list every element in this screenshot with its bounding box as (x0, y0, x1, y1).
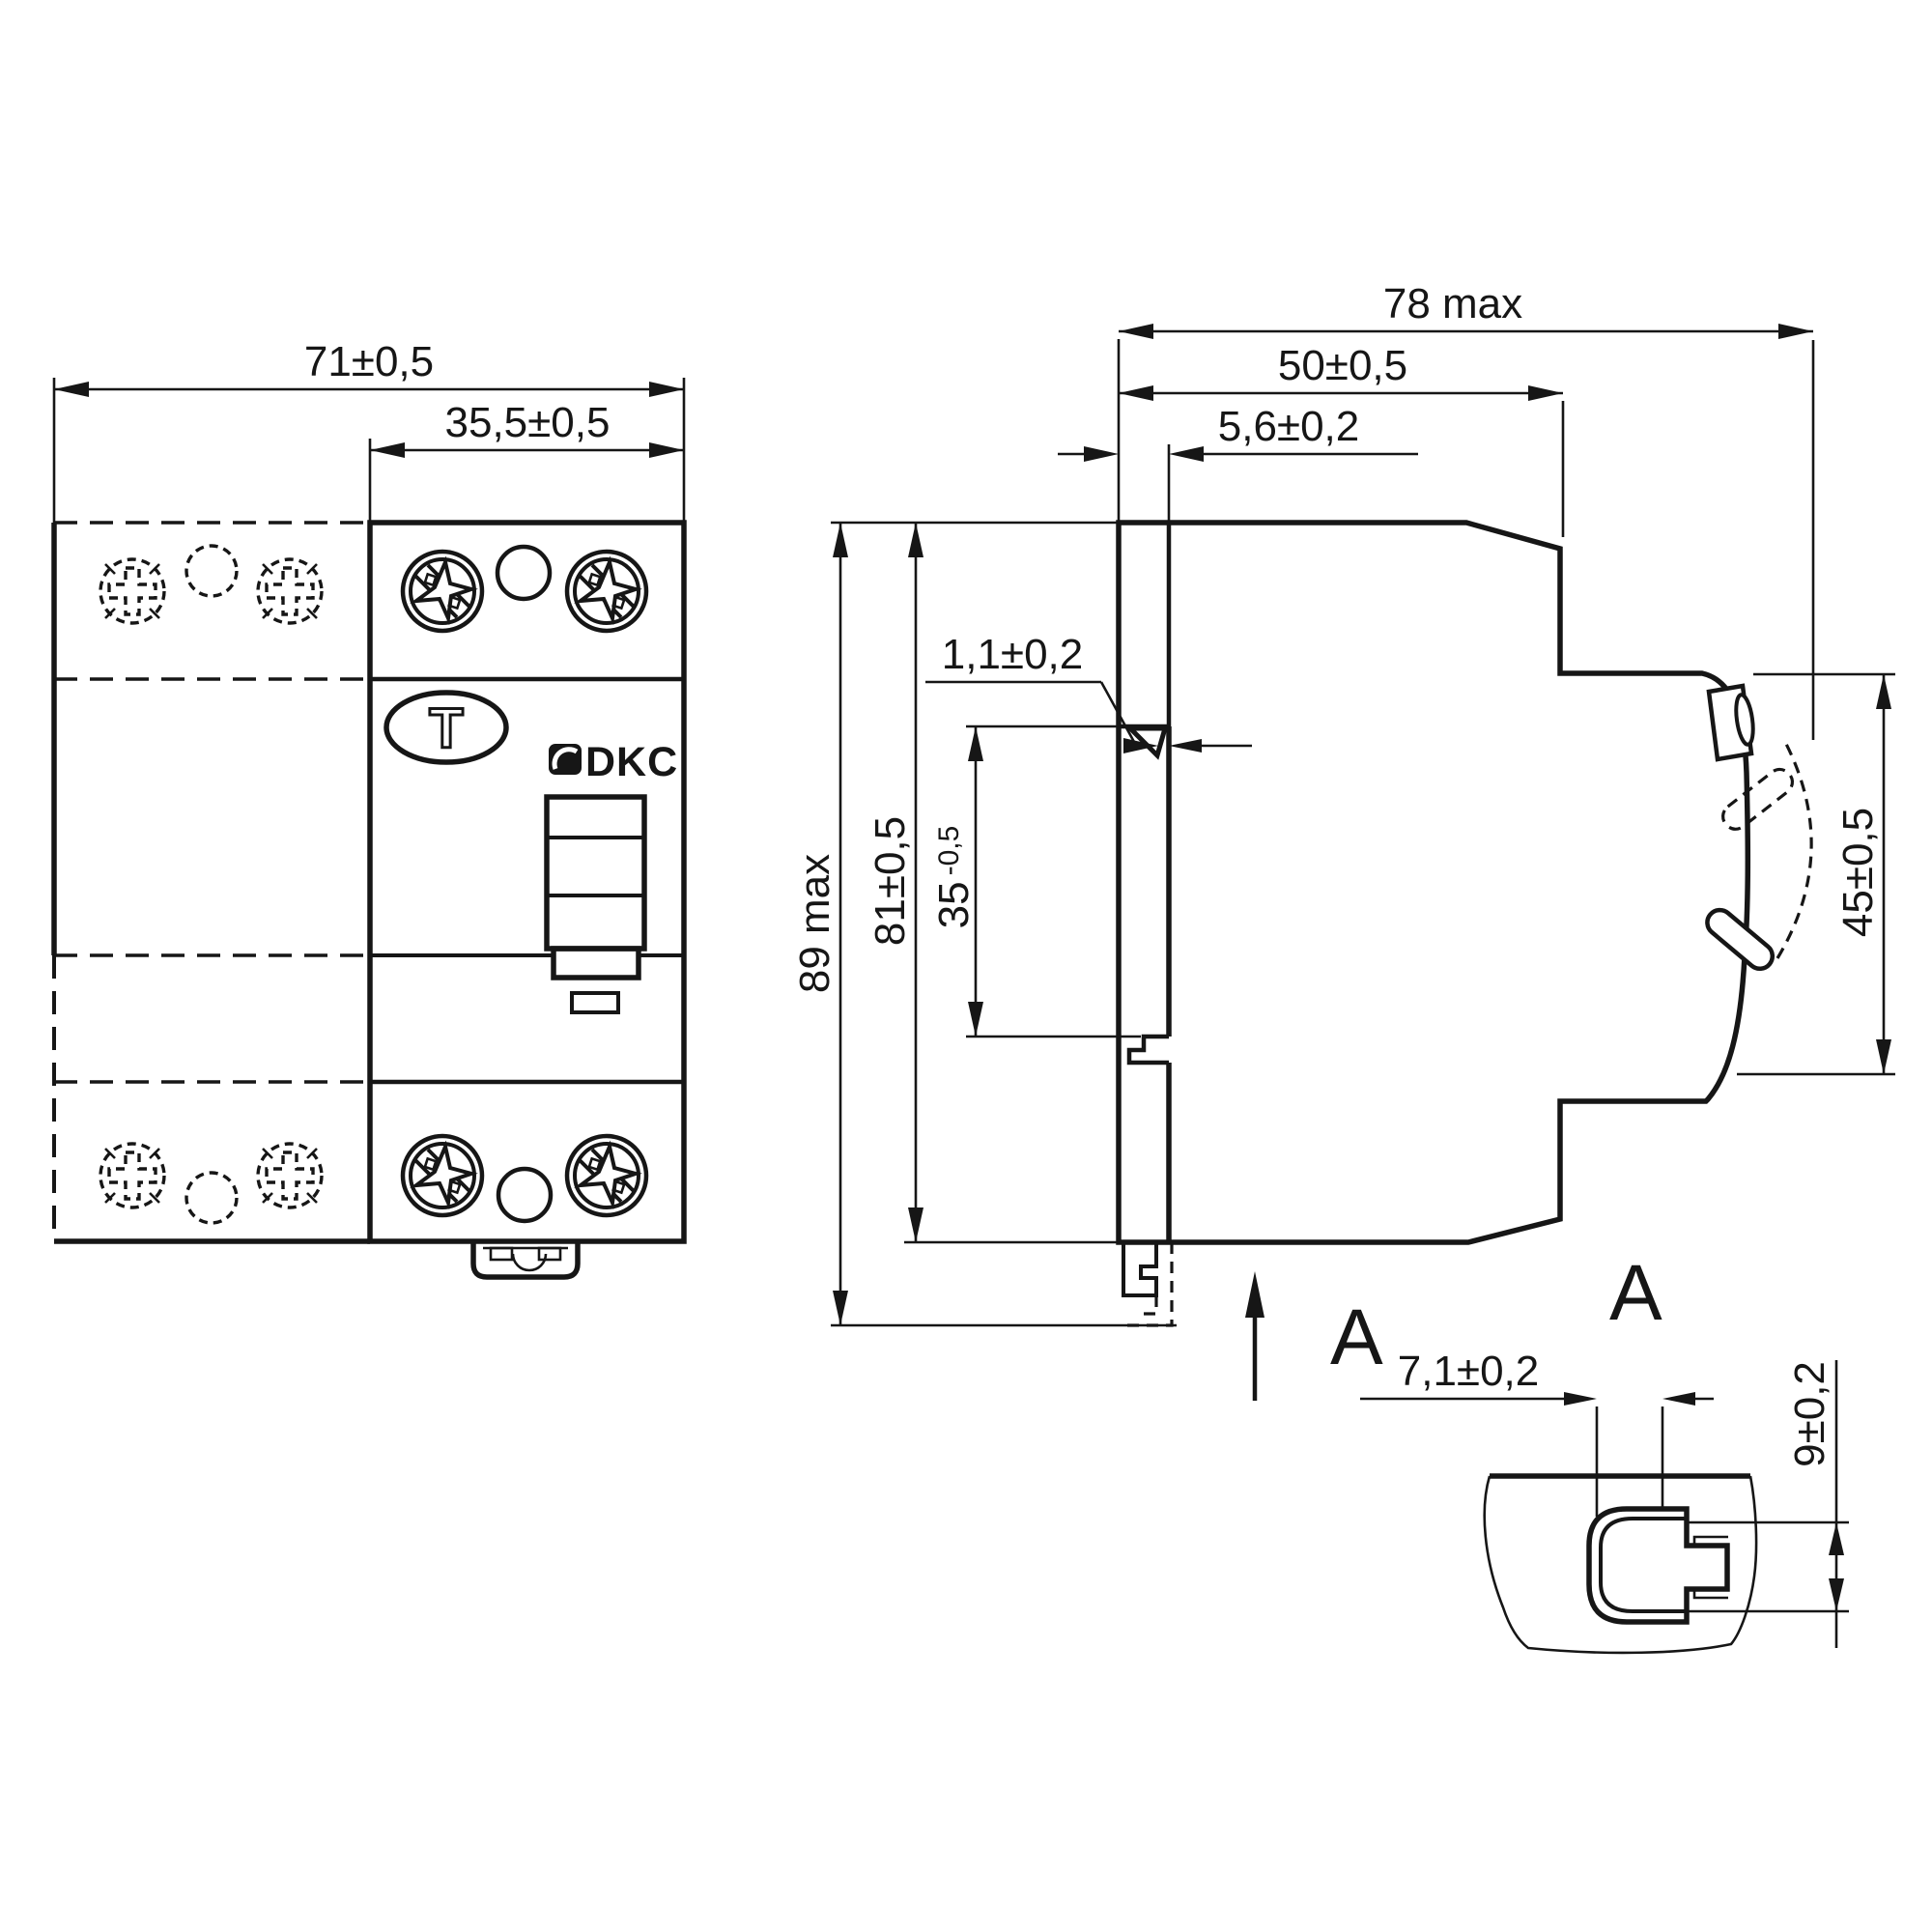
dim-module-width: 35,5±0,5 (445, 399, 611, 446)
wire-hole-icon (497, 547, 550, 599)
dim-clip-width: 7,1±0,2 (1398, 1348, 1539, 1395)
dim-overall-width: 71±0,5 (304, 338, 434, 385)
side-body-outline (1119, 523, 1747, 1242)
technical-drawing-rcd: T DKC (0, 0, 1932, 1932)
side-view: 78 max 50±0,5 5,6±0,2 89 max (791, 280, 1895, 1401)
din-clip-notch (491, 1248, 512, 1260)
dim-clip-height: 9±0,2 (1786, 1361, 1833, 1467)
dim-notch: 1,1±0,2 (942, 631, 1083, 678)
detail-clip-inner-wall (1601, 1519, 1687, 1611)
din-clip-foot (1123, 1242, 1156, 1295)
front-view: T DKC (54, 338, 684, 1277)
phantom-wire-hole-icon (186, 546, 237, 596)
lever-swing-arc (1777, 742, 1811, 958)
view-label: A (1330, 1293, 1383, 1381)
test-button: T (386, 693, 506, 762)
screw-terminal-icon (567, 552, 646, 631)
screw-terminal-icon (403, 1136, 482, 1215)
din-lower-hook (1129, 1037, 1169, 1063)
din-rail-mount (1119, 523, 1172, 1325)
din-clip-arc (513, 1254, 546, 1270)
view-arrow-head-icon (1245, 1271, 1264, 1318)
dim-depth: 50±0,5 (1278, 342, 1407, 389)
dkc-logo: DKC (549, 739, 678, 785)
din-clip-front (473, 1241, 578, 1277)
detail-break-outline (1485, 1476, 1756, 1653)
dim-front-height: 45±0,5 (1834, 808, 1882, 937)
indicator-window (572, 993, 618, 1012)
dim-din-offset: 5,6±0,2 (1218, 403, 1359, 450)
side-view-dimensions: 78 max 50±0,5 5,6±0,2 89 max (791, 280, 1895, 1325)
phantom-screw-terminal-icon (100, 559, 164, 623)
module-outline (370, 523, 684, 1241)
dim-height-max: 89 max (791, 854, 838, 993)
screw-terminal-icon (403, 552, 482, 631)
front-phantom-module (54, 523, 370, 1241)
detail-title: A (1609, 1249, 1662, 1337)
dim-depth-max: 78 max (1383, 280, 1522, 327)
front-view-dimensions: 71±0,5 35,5±0,5 (54, 338, 684, 523)
test-button-label: T (429, 697, 463, 760)
din-clip-tab-outline (473, 1241, 578, 1277)
wire-hole-icon (498, 1169, 551, 1221)
brand-text: DKC (585, 739, 678, 785)
dim-rail-width: 35-0,5 (930, 826, 978, 929)
phantom-screw-terminal-icon (100, 1144, 164, 1207)
switch-handle-outline (547, 797, 644, 949)
detail-view-a: A 7,1±0,2 9±0,2 (1360, 1249, 1849, 1653)
dim-height: 81±0,5 (867, 816, 914, 946)
phantom-screw-terminal-icon (258, 559, 322, 623)
phantom-wire-hole-icon (186, 1173, 237, 1223)
switch-handle-toe (554, 949, 639, 978)
front-face-features (1702, 686, 1811, 974)
phantom-screw-terminal-icon (258, 1144, 322, 1207)
din-clip-notch (539, 1248, 560, 1260)
switch-handle (547, 797, 644, 1012)
toggle-lever-alt-position (1718, 764, 1797, 834)
front-main-module: T DKC (370, 523, 684, 1277)
toggle-lever (1702, 905, 1777, 974)
din-clip-foot-extended-step (1138, 1295, 1156, 1314)
view-direction-indicator: A (1245, 1271, 1383, 1401)
screw-terminal-icon (567, 1136, 646, 1215)
